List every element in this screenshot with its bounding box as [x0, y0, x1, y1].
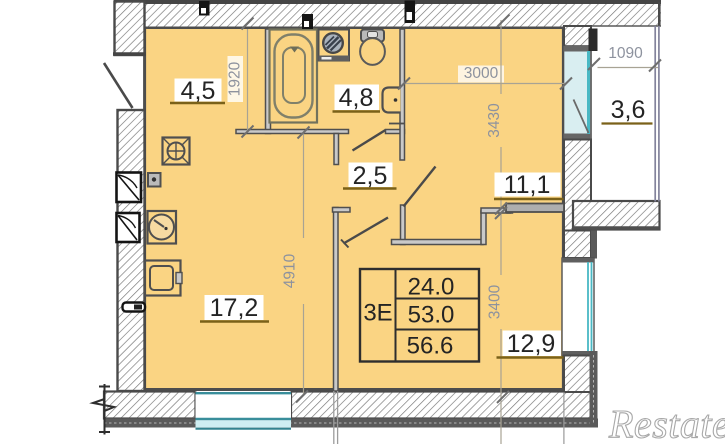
svg-text:4910: 4910: [282, 253, 299, 288]
svg-text:3,6: 3,6: [611, 96, 646, 124]
svg-text:3400: 3400: [487, 284, 504, 319]
svg-text:1920: 1920: [227, 61, 244, 96]
svg-text:1090: 1090: [608, 45, 643, 62]
svg-text:11,1: 11,1: [504, 171, 551, 199]
svg-text:3430: 3430: [486, 103, 503, 138]
svg-text:2,5: 2,5: [353, 162, 388, 190]
svg-text:3Е: 3Е: [363, 300, 392, 327]
svg-text:56.6: 56.6: [407, 333, 454, 360]
svg-text:53.0: 53.0: [408, 302, 455, 329]
svg-text:12,9: 12,9: [507, 330, 556, 358]
svg-text:17,2: 17,2: [210, 294, 259, 322]
svg-text:Restate: Restate: [608, 402, 725, 444]
svg-text:4,8: 4,8: [339, 84, 374, 112]
svg-text:3000: 3000: [464, 65, 499, 82]
svg-text:24.0: 24.0: [408, 274, 455, 301]
svg-text:4,5: 4,5: [181, 77, 216, 105]
